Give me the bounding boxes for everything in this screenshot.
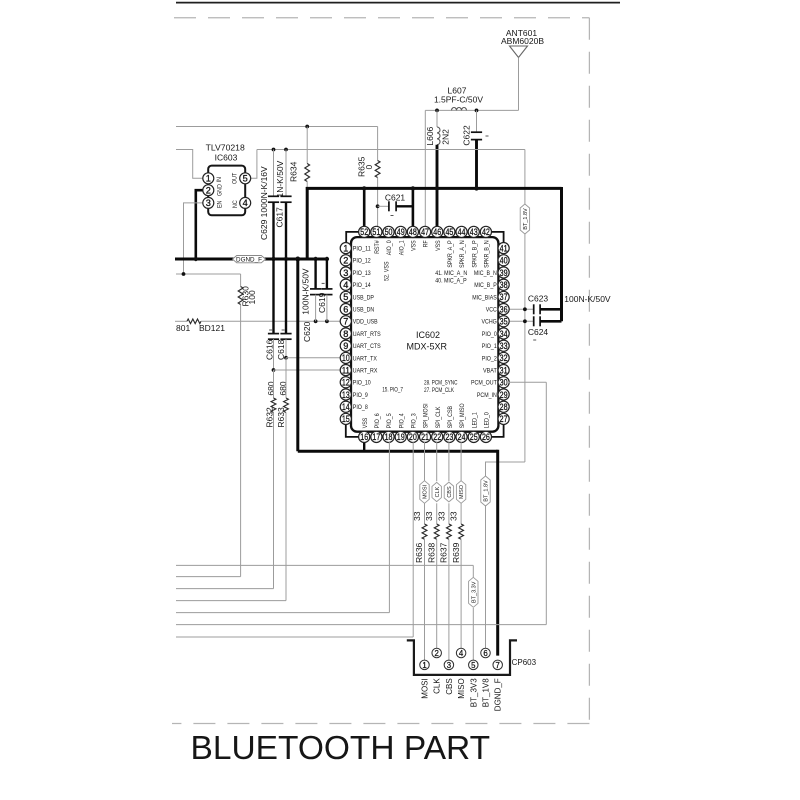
svg-text:38: 38 — [500, 280, 508, 290]
svg-text:PIO_1: PIO_1 — [482, 343, 497, 350]
svg-text:CP603: CP603 — [512, 658, 537, 667]
svg-text:MIC_B_N: MIC_B_N — [474, 270, 497, 277]
svg-text:13: 13 — [342, 390, 350, 400]
svg-text:11: 11 — [342, 365, 350, 375]
svg-text:SPKR_B_N: SPKR_B_N — [484, 240, 491, 268]
svg-text:21: 21 — [421, 432, 429, 442]
svg-text:PCM_IN: PCM_IN — [477, 392, 497, 399]
svg-text:801: 801 — [176, 323, 190, 333]
svg-text:1N-K/50V: 1N-K/50V — [275, 160, 285, 197]
svg-text:BT_1.8V: BT_1.8V — [484, 480, 490, 502]
svg-text:DGND_F: DGND_F — [236, 257, 262, 264]
svg-text:C620: C620 — [302, 321, 312, 342]
svg-text:12: 12 — [342, 378, 350, 388]
svg-text:R636: R636 — [414, 542, 424, 563]
svg-text:PIO_8: PIO_8 — [353, 404, 368, 411]
svg-text:C622: C622 — [461, 125, 471, 146]
svg-text:6: 6 — [343, 304, 348, 314]
svg-text:BD121: BD121 — [199, 323, 225, 333]
svg-text:28: 28 — [500, 402, 508, 412]
svg-text:PIO_4: PIO_4 — [398, 413, 405, 428]
svg-text:RF: RF — [423, 240, 430, 247]
svg-text:RST#: RST# — [374, 240, 381, 254]
svg-text:33: 33 — [424, 511, 434, 521]
svg-text:MOSI: MOSI — [423, 484, 429, 499]
svg-text:R639: R639 — [451, 542, 461, 563]
svg-text:52: 52 — [360, 227, 368, 237]
svg-text:CBS: CBS — [445, 678, 454, 694]
svg-text:3: 3 — [206, 198, 211, 208]
svg-text:36: 36 — [500, 304, 508, 314]
svg-text:40: 40 — [500, 256, 508, 266]
svg-text:SPI_MISO: SPI_MISO — [459, 403, 466, 428]
svg-text:VCHG: VCHG — [482, 319, 497, 326]
svg-text:TLV70218: TLV70218 — [206, 142, 245, 152]
svg-text:2N2: 2N2 — [440, 129, 450, 145]
svg-text:USB_DP: USB_DP — [353, 294, 375, 301]
svg-text:49: 49 — [397, 227, 405, 237]
svg-text:AIO_1: AIO_1 — [398, 240, 405, 255]
svg-text:33: 33 — [500, 341, 508, 351]
svg-text:PIO_13: PIO_13 — [353, 270, 371, 277]
svg-text:1: 1 — [422, 661, 426, 670]
svg-text:VCC: VCC — [486, 307, 497, 314]
svg-text:5: 5 — [471, 661, 476, 670]
svg-text:7: 7 — [343, 317, 348, 327]
svg-text:28. PCM_SYNC: 28. PCM_SYNC — [424, 379, 458, 386]
svg-text:35: 35 — [500, 317, 508, 327]
svg-text:SPKR_B_P: SPKR_B_P — [471, 240, 478, 268]
svg-text:BT_1.8V: BT_1.8V — [523, 208, 529, 230]
svg-text:18: 18 — [385, 432, 393, 442]
svg-text:R637: R637 — [439, 542, 449, 563]
svg-text:100: 100 — [247, 290, 257, 304]
svg-text:31: 31 — [500, 365, 508, 375]
svg-text:PIO_5: PIO_5 — [386, 413, 393, 428]
svg-text:IC603: IC603 — [215, 153, 238, 163]
svg-text:VSS: VSS — [435, 240, 442, 251]
svg-text:PIO_0: PIO_0 — [482, 331, 497, 338]
svg-text:26: 26 — [482, 432, 490, 442]
svg-text:VDD_USB: VDD_USB — [353, 319, 378, 326]
svg-text:R633: R633 — [276, 407, 286, 428]
svg-text:AIO_0: AIO_0 — [386, 240, 393, 255]
svg-text:30: 30 — [500, 378, 508, 388]
svg-text:37: 37 — [500, 292, 508, 302]
svg-text:22: 22 — [433, 432, 441, 442]
svg-text:PCM_OUT: PCM_OUT — [471, 380, 497, 387]
svg-text:15. PIO_7: 15. PIO_7 — [382, 386, 403, 393]
svg-text:PIO_3: PIO_3 — [410, 413, 417, 428]
svg-text:C624: C624 — [528, 327, 549, 337]
svg-text:0: 0 — [364, 165, 374, 170]
svg-text:MISO: MISO — [459, 484, 465, 499]
svg-text:20: 20 — [409, 432, 417, 442]
svg-text:100N-K/50V: 100N-K/50V — [301, 268, 311, 315]
svg-text:PIO_11: PIO_11 — [353, 246, 371, 253]
svg-text:GND: GND — [217, 184, 224, 196]
svg-text:32: 32 — [500, 353, 508, 363]
svg-text:33: 33 — [412, 511, 422, 521]
svg-text:41: 41 — [500, 243, 508, 253]
svg-text:SPI_MOSI: SPI_MOSI — [423, 403, 430, 428]
svg-text:R638: R638 — [426, 542, 436, 563]
svg-text:L606: L606 — [425, 126, 435, 145]
svg-text:UART_RX: UART_RX — [353, 368, 378, 375]
svg-text:C623: C623 — [528, 294, 549, 304]
svg-text:R634: R634 — [288, 161, 298, 182]
svg-text:LED_0: LED_0 — [484, 412, 491, 428]
svg-text:48: 48 — [409, 227, 417, 237]
svg-text:CBS: CBS — [447, 486, 453, 498]
svg-text:1: 1 — [206, 174, 211, 184]
svg-text:MISO: MISO — [457, 678, 466, 698]
svg-text:5: 5 — [343, 292, 348, 302]
svg-text:CLK: CLK — [433, 678, 442, 694]
svg-text:17: 17 — [372, 432, 380, 442]
svg-text:100N-K/50V: 100N-K/50V — [564, 294, 611, 304]
svg-text:6: 6 — [483, 649, 487, 658]
svg-text:CLK: CLK — [435, 486, 441, 497]
svg-text:33: 33 — [436, 511, 446, 521]
svg-text:41. MIC_A_N: 41. MIC_A_N — [435, 270, 467, 277]
svg-text:PIO_9: PIO_9 — [353, 392, 368, 399]
svg-text:52. VSS: 52. VSS — [383, 262, 390, 282]
svg-text:5: 5 — [243, 174, 248, 184]
svg-text:PIO_10: PIO_10 — [353, 380, 371, 387]
svg-text:3: 3 — [447, 661, 451, 670]
svg-text:VSS: VSS — [410, 240, 417, 251]
svg-text:4: 4 — [343, 280, 348, 290]
svg-text:4: 4 — [459, 649, 464, 658]
svg-text:UART_TX: UART_TX — [353, 355, 378, 362]
svg-text:C629 1000N-K/16V: C629 1000N-K/16V — [259, 166, 269, 240]
svg-text:44: 44 — [458, 227, 466, 237]
svg-text:MIC_B_P: MIC_B_P — [474, 282, 497, 289]
svg-text:2: 2 — [435, 649, 439, 658]
svg-text:8: 8 — [343, 329, 348, 339]
svg-text:MOSI: MOSI — [421, 678, 430, 698]
svg-text:PIO_12: PIO_12 — [353, 258, 371, 265]
svg-text:1: 1 — [343, 243, 348, 253]
svg-text:UART_CTS: UART_CTS — [353, 343, 381, 350]
svg-text:USB_DN: USB_DN — [353, 307, 375, 314]
svg-text:MDX-5XR: MDX-5XR — [407, 341, 448, 351]
svg-text:SPI_CSB: SPI_CSB — [447, 406, 454, 429]
svg-text:46: 46 — [433, 227, 441, 237]
svg-text:23: 23 — [445, 432, 453, 442]
svg-text:UART_RTS: UART_RTS — [353, 331, 381, 338]
svg-text:14: 14 — [342, 402, 350, 412]
svg-text:SPKR_A_P: SPKR_A_P — [447, 240, 454, 268]
svg-text:29: 29 — [500, 390, 508, 400]
svg-text:ABM6020B: ABM6020B — [501, 36, 544, 46]
svg-text:19: 19 — [397, 432, 405, 442]
svg-text:EN: EN — [217, 200, 224, 208]
svg-text:16: 16 — [360, 432, 368, 442]
svg-text:10: 10 — [342, 353, 350, 363]
svg-text:1.5PF-C/50V: 1.5PF-C/50V — [434, 95, 483, 105]
svg-text:27: 27 — [500, 414, 508, 424]
svg-text:27. PCM_CLK: 27. PCM_CLK — [424, 387, 455, 394]
svg-text:42: 42 — [482, 227, 490, 237]
svg-text:24: 24 — [458, 432, 466, 442]
svg-text:25: 25 — [470, 432, 478, 442]
svg-text:47: 47 — [421, 227, 429, 237]
svg-text:7: 7 — [496, 661, 500, 670]
svg-text:2: 2 — [343, 256, 348, 266]
svg-text:VSS: VSS — [362, 417, 369, 428]
svg-text:15: 15 — [342, 414, 350, 424]
svg-text:BT_1V8: BT_1V8 — [482, 678, 491, 707]
svg-text:680: 680 — [266, 381, 276, 395]
svg-text:MIC_BIAS: MIC_BIAS — [472, 294, 497, 301]
svg-text:PIO_14: PIO_14 — [353, 282, 371, 289]
svg-text:34: 34 — [500, 329, 508, 339]
svg-text:39: 39 — [500, 268, 508, 278]
svg-text:IC602: IC602 — [416, 330, 440, 340]
svg-text:IN: IN — [216, 177, 223, 183]
svg-text:BLUETOOTH PART: BLUETOOTH PART — [191, 729, 491, 766]
svg-text:C621: C621 — [385, 193, 406, 203]
svg-text:33: 33 — [449, 511, 459, 521]
svg-text:DGND_F: DGND_F — [494, 678, 503, 711]
svg-text:9: 9 — [343, 341, 348, 351]
svg-text:50: 50 — [385, 227, 393, 237]
svg-text:2: 2 — [206, 186, 211, 196]
svg-text:4: 4 — [243, 198, 248, 208]
svg-text:40. MIC_A_P: 40. MIC_A_P — [435, 277, 467, 284]
svg-text:45: 45 — [445, 227, 453, 237]
svg-text:OUT: OUT — [232, 173, 239, 184]
svg-text:BT_3V3: BT_3V3 — [469, 678, 478, 707]
svg-text:C617: C617 — [275, 207, 285, 228]
svg-text:BT_3.3V: BT_3.3V — [471, 581, 477, 603]
svg-text:NC: NC — [232, 200, 239, 208]
svg-text:PIO_6: PIO_6 — [374, 413, 381, 428]
svg-text:LED_1: LED_1 — [471, 412, 478, 428]
svg-text:43: 43 — [470, 227, 478, 237]
svg-text:VBAT: VBAT — [483, 368, 497, 375]
svg-text:PIO_2: PIO_2 — [482, 355, 497, 362]
svg-text:3: 3 — [343, 268, 348, 278]
svg-text:SPKR_A_N: SPKR_A_N — [459, 240, 466, 268]
svg-text:C619: C619 — [317, 292, 327, 313]
svg-text:C616: C616 — [264, 339, 274, 360]
svg-text:SPI_CLK: SPI_CLK — [435, 406, 442, 428]
svg-text:51: 51 — [372, 227, 380, 237]
